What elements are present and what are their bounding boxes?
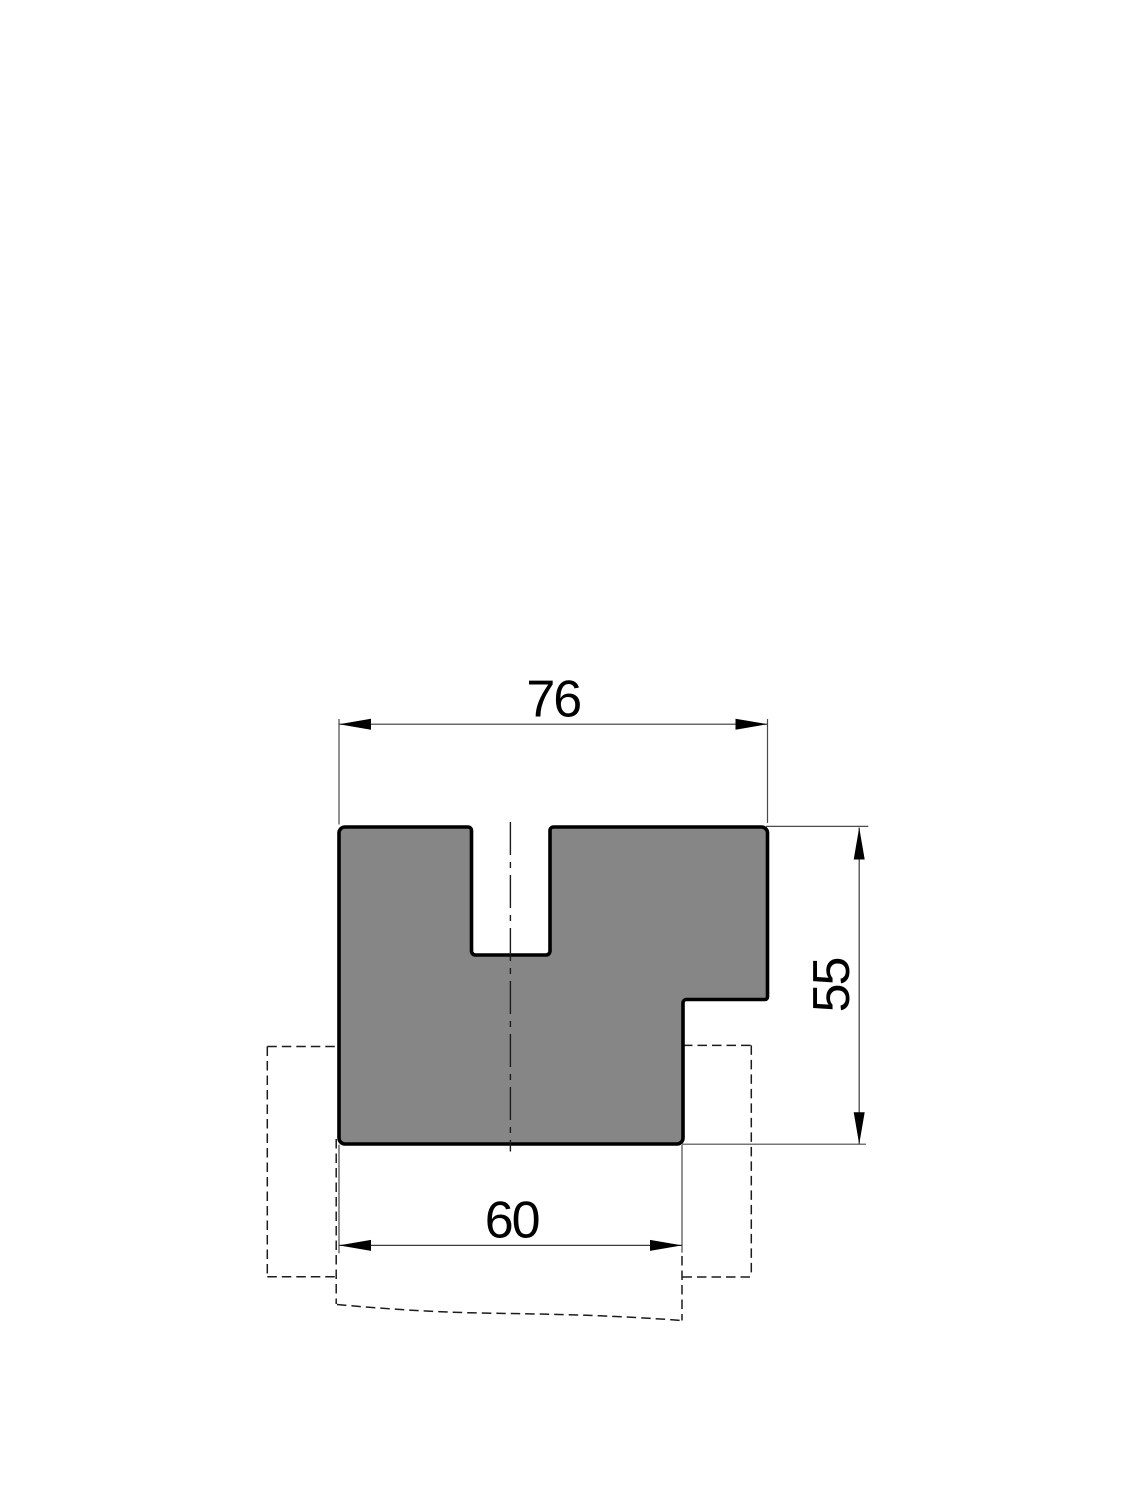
svg-text:76: 76 (526, 671, 580, 729)
svg-text:60: 60 (485, 1191, 539, 1249)
svg-text:55: 55 (803, 959, 861, 1013)
